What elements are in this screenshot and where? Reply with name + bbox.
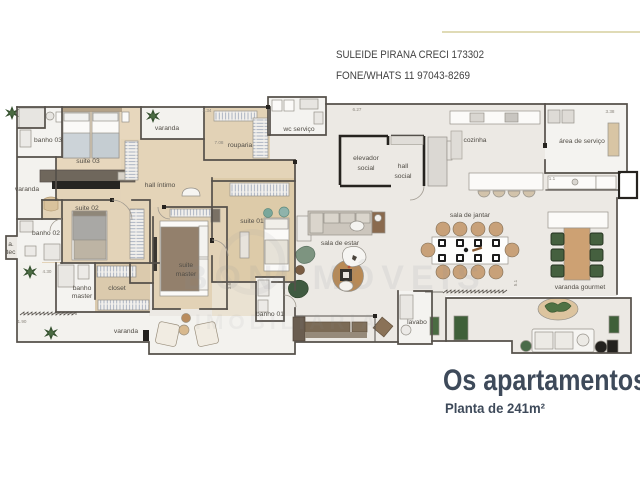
- svg-text:Os apartamentos: Os apartamentos: [443, 364, 640, 397]
- svg-text:suite 02: suite 02: [75, 205, 99, 212]
- svg-text:FONE/WHATS 11 97043-8269: FONE/WHATS 11 97043-8269: [336, 70, 470, 82]
- svg-text:banho 01: banho 01: [256, 311, 284, 318]
- svg-text:5.1: 5.1: [513, 279, 518, 286]
- svg-text:IMOBILIARIA: IMOBILIARIA: [195, 311, 381, 334]
- svg-text:4.30: 4.30: [43, 269, 52, 274]
- svg-text:banho 02: banho 02: [32, 230, 60, 237]
- svg-text:7.08: 7.08: [215, 140, 224, 145]
- svg-text:área de serviço: área de serviço: [559, 138, 605, 145]
- svg-text:1.90: 1.90: [18, 319, 27, 324]
- svg-text:master: master: [72, 293, 93, 300]
- svg-text:1.1: 1.1: [549, 176, 556, 181]
- svg-text:banho: banho: [73, 285, 92, 292]
- svg-text:elevador: elevador: [353, 155, 379, 162]
- svg-text:suite: suite: [179, 262, 193, 269]
- svg-text:Planta de 241m²: Planta de 241m²: [445, 400, 545, 416]
- svg-text:hall: hall: [398, 163, 409, 170]
- svg-text:master: master: [176, 271, 197, 278]
- svg-text:hall íntimo: hall íntimo: [145, 182, 176, 189]
- svg-text:varanda gourmet: varanda gourmet: [555, 284, 606, 291]
- svg-text:varanda: varanda: [114, 328, 138, 335]
- svg-text:lavabo: lavabo: [407, 319, 427, 326]
- svg-text:SULEIDE PIRANA CRECI 173302: SULEIDE PIRANA CRECI 173302: [336, 49, 484, 61]
- svg-text:social: social: [357, 165, 375, 172]
- svg-text:3.6: 3.6: [227, 282, 232, 289]
- svg-text:3.38: 3.38: [606, 109, 615, 114]
- svg-text:sala de jantar: sala de jantar: [450, 212, 491, 219]
- svg-text:rouparia: rouparia: [228, 142, 253, 149]
- svg-text:a.: a.: [8, 241, 14, 248]
- svg-text:varanda: varanda: [155, 125, 179, 132]
- svg-text:BONI MÓVEIS: BONI MÓVEIS: [183, 259, 487, 297]
- svg-text:6.27: 6.27: [353, 107, 362, 112]
- svg-text:tec: tec: [7, 249, 17, 256]
- svg-text:cozinha: cozinha: [463, 137, 486, 144]
- svg-text:closet: closet: [108, 285, 126, 292]
- svg-text:sala de estar: sala de estar: [321, 240, 360, 247]
- svg-text:varanda: varanda: [15, 186, 39, 193]
- svg-text:wc serviço: wc serviço: [282, 126, 314, 133]
- svg-text:suite 03: suite 03: [76, 158, 100, 165]
- svg-text:suite 01: suite 01: [240, 218, 264, 225]
- svg-text:2.34: 2.34: [203, 108, 212, 113]
- svg-text:social: social: [394, 173, 412, 180]
- svg-text:banho 03: banho 03: [34, 137, 62, 144]
